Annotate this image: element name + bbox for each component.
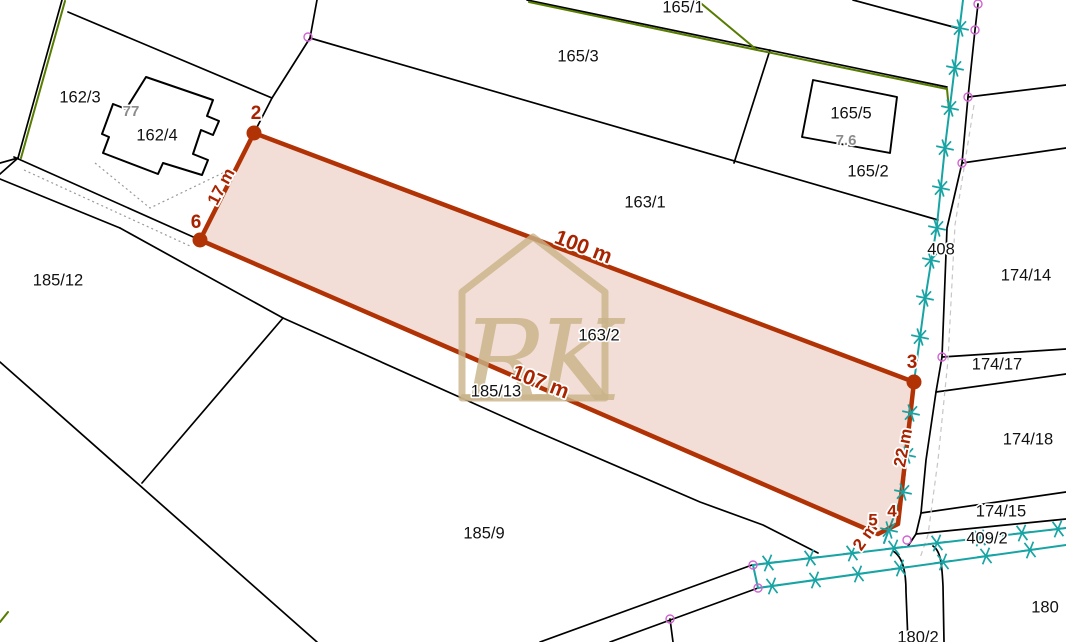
parcel-label-174-14: 174/14 [1001, 266, 1051, 284]
cadastral-map-canvas[interactable]: RK 165/1 165/3 162/3 162/4 165/5 165/2 1… [0, 0, 1066, 642]
vertex-dot-2 [247, 126, 262, 141]
vertex-dot-3 [907, 375, 922, 390]
building-label-7-6: 7.6 [836, 132, 857, 149]
vertex-label-2: 2 [251, 103, 262, 124]
parcel-label-162-3: 162/3 [59, 88, 100, 106]
parcel-label-174-18: 174/18 [1003, 430, 1053, 448]
parcel-label-185-13: 185/13 [471, 382, 521, 400]
parcel-label-180: 180 [1031, 598, 1059, 616]
parcel-label-165-3: 165/3 [557, 47, 598, 65]
parcel-label-162-4: 162/4 [136, 126, 177, 144]
parcel-label-174-17: 174/17 [972, 355, 1022, 373]
watermark-initials: RK [460, 297, 626, 427]
parcel-label-163-2: 163/2 [578, 326, 619, 344]
parcel-label-185-9: 185/9 [463, 524, 504, 542]
vertex-label-3: 3 [907, 352, 918, 373]
parcel-label-180-2: 180/2 [897, 628, 938, 642]
parcel-label-185-12: 185/12 [33, 271, 83, 289]
parcel-label-165-1: 165/1 [662, 0, 703, 16]
map-viewport[interactable]: RK 165/1 165/3 162/3 162/4 165/5 165/2 1… [0, 0, 1066, 642]
parcel-label-165-5: 165/5 [830, 104, 871, 122]
parcel-label-163-1: 163/1 [624, 193, 665, 211]
building-footprint [102, 77, 897, 175]
parcel-label-174-15: 174/15 [976, 502, 1026, 520]
vertex-dot-6 [193, 233, 208, 248]
parcel-label-408: 408 [927, 240, 955, 258]
parcel-label-165-2: 165/2 [847, 162, 888, 180]
vertex-label-5: 5 [868, 510, 877, 529]
vertex-label-6: 6 [191, 212, 202, 233]
building-label-77: 77 [123, 103, 140, 120]
vertex-label-4: 4 [887, 501, 897, 520]
parcel-label-409-2: 409/2 [966, 529, 1007, 547]
